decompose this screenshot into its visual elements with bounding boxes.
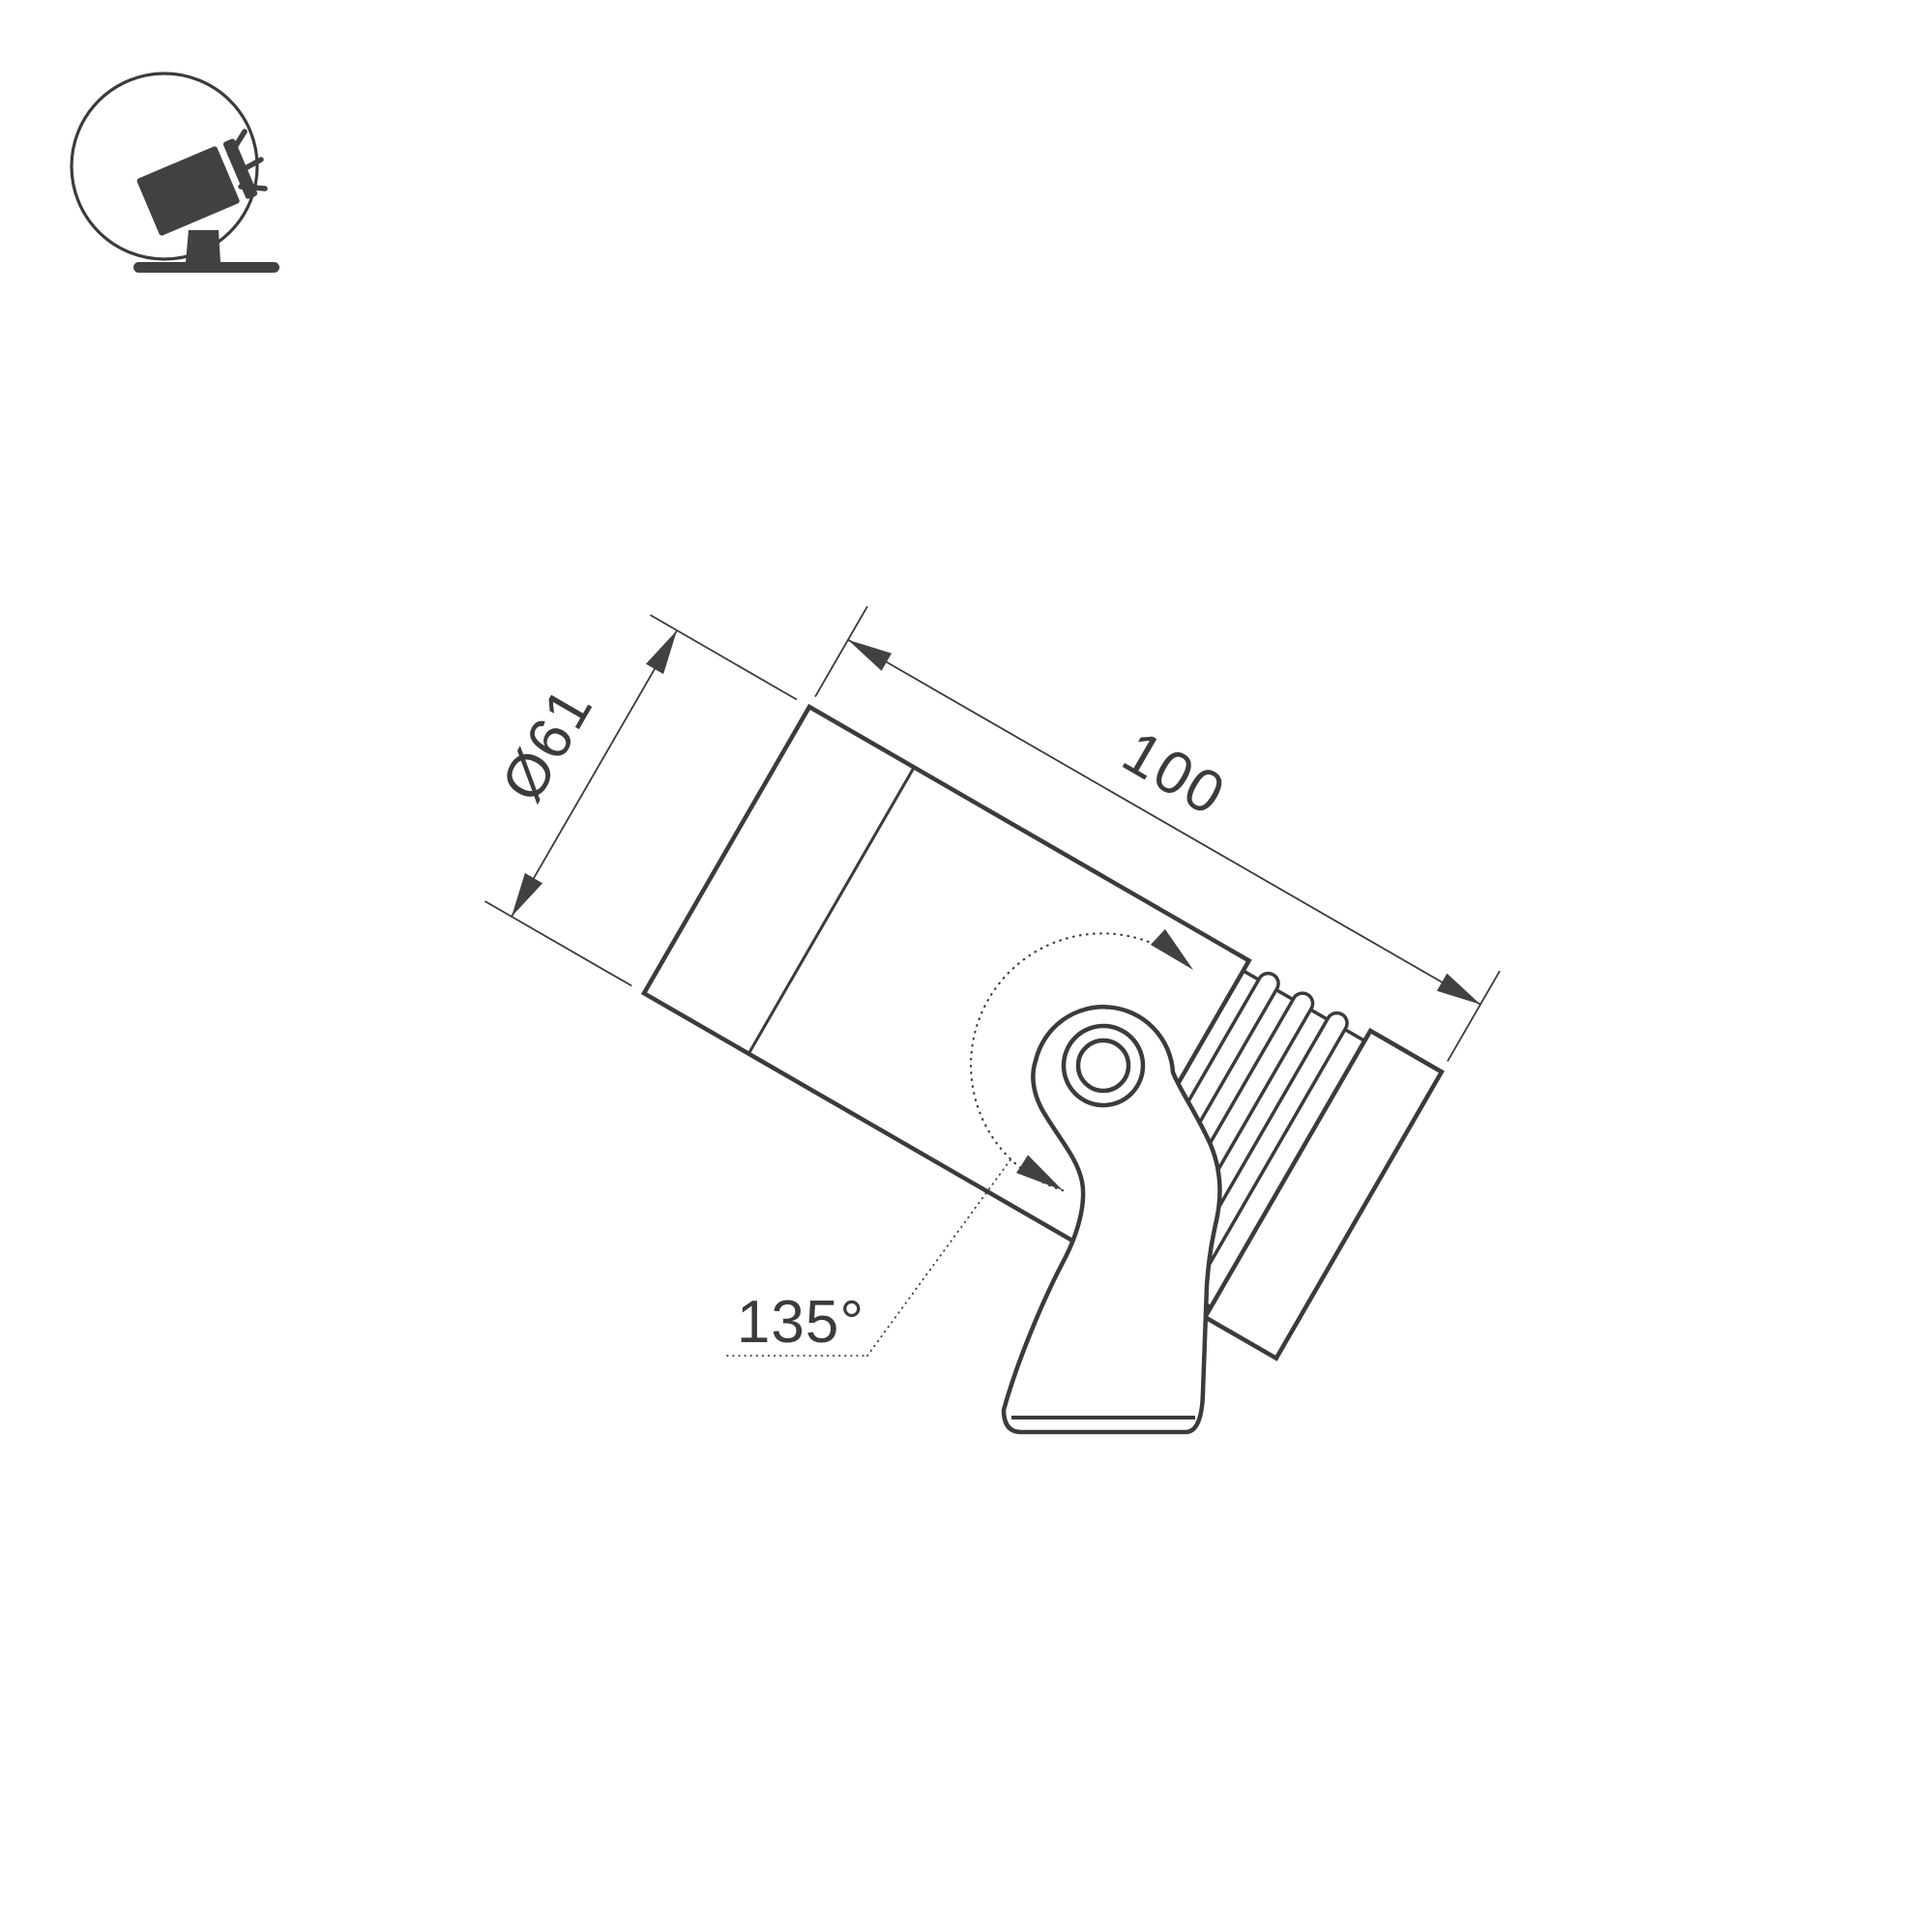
diameter-dimension-label: Ø61 (489, 676, 606, 812)
spotlight-head-shape (136, 145, 241, 236)
length-dimension-label: 100 (1112, 718, 1237, 829)
spotlight-base-shape (133, 262, 279, 273)
leader-line (867, 1158, 1011, 1356)
spotlight-stand-shape (186, 230, 220, 262)
angle-dimension-label: 135° (737, 1289, 864, 1356)
extension-line (651, 615, 798, 700)
pivot-knob-inner-ring (1078, 1040, 1128, 1091)
lamp-assembly (644, 707, 1442, 1359)
product-icon-badge (72, 73, 279, 273)
drawing-page: Ø61 100 135° (0, 0, 1932, 1932)
extension-line (485, 901, 632, 986)
spotlight-dimension-drawing: Ø61 100 135° (0, 0, 1932, 1932)
dimension-angle: 135° (727, 1158, 1011, 1356)
extension-line (815, 606, 867, 697)
